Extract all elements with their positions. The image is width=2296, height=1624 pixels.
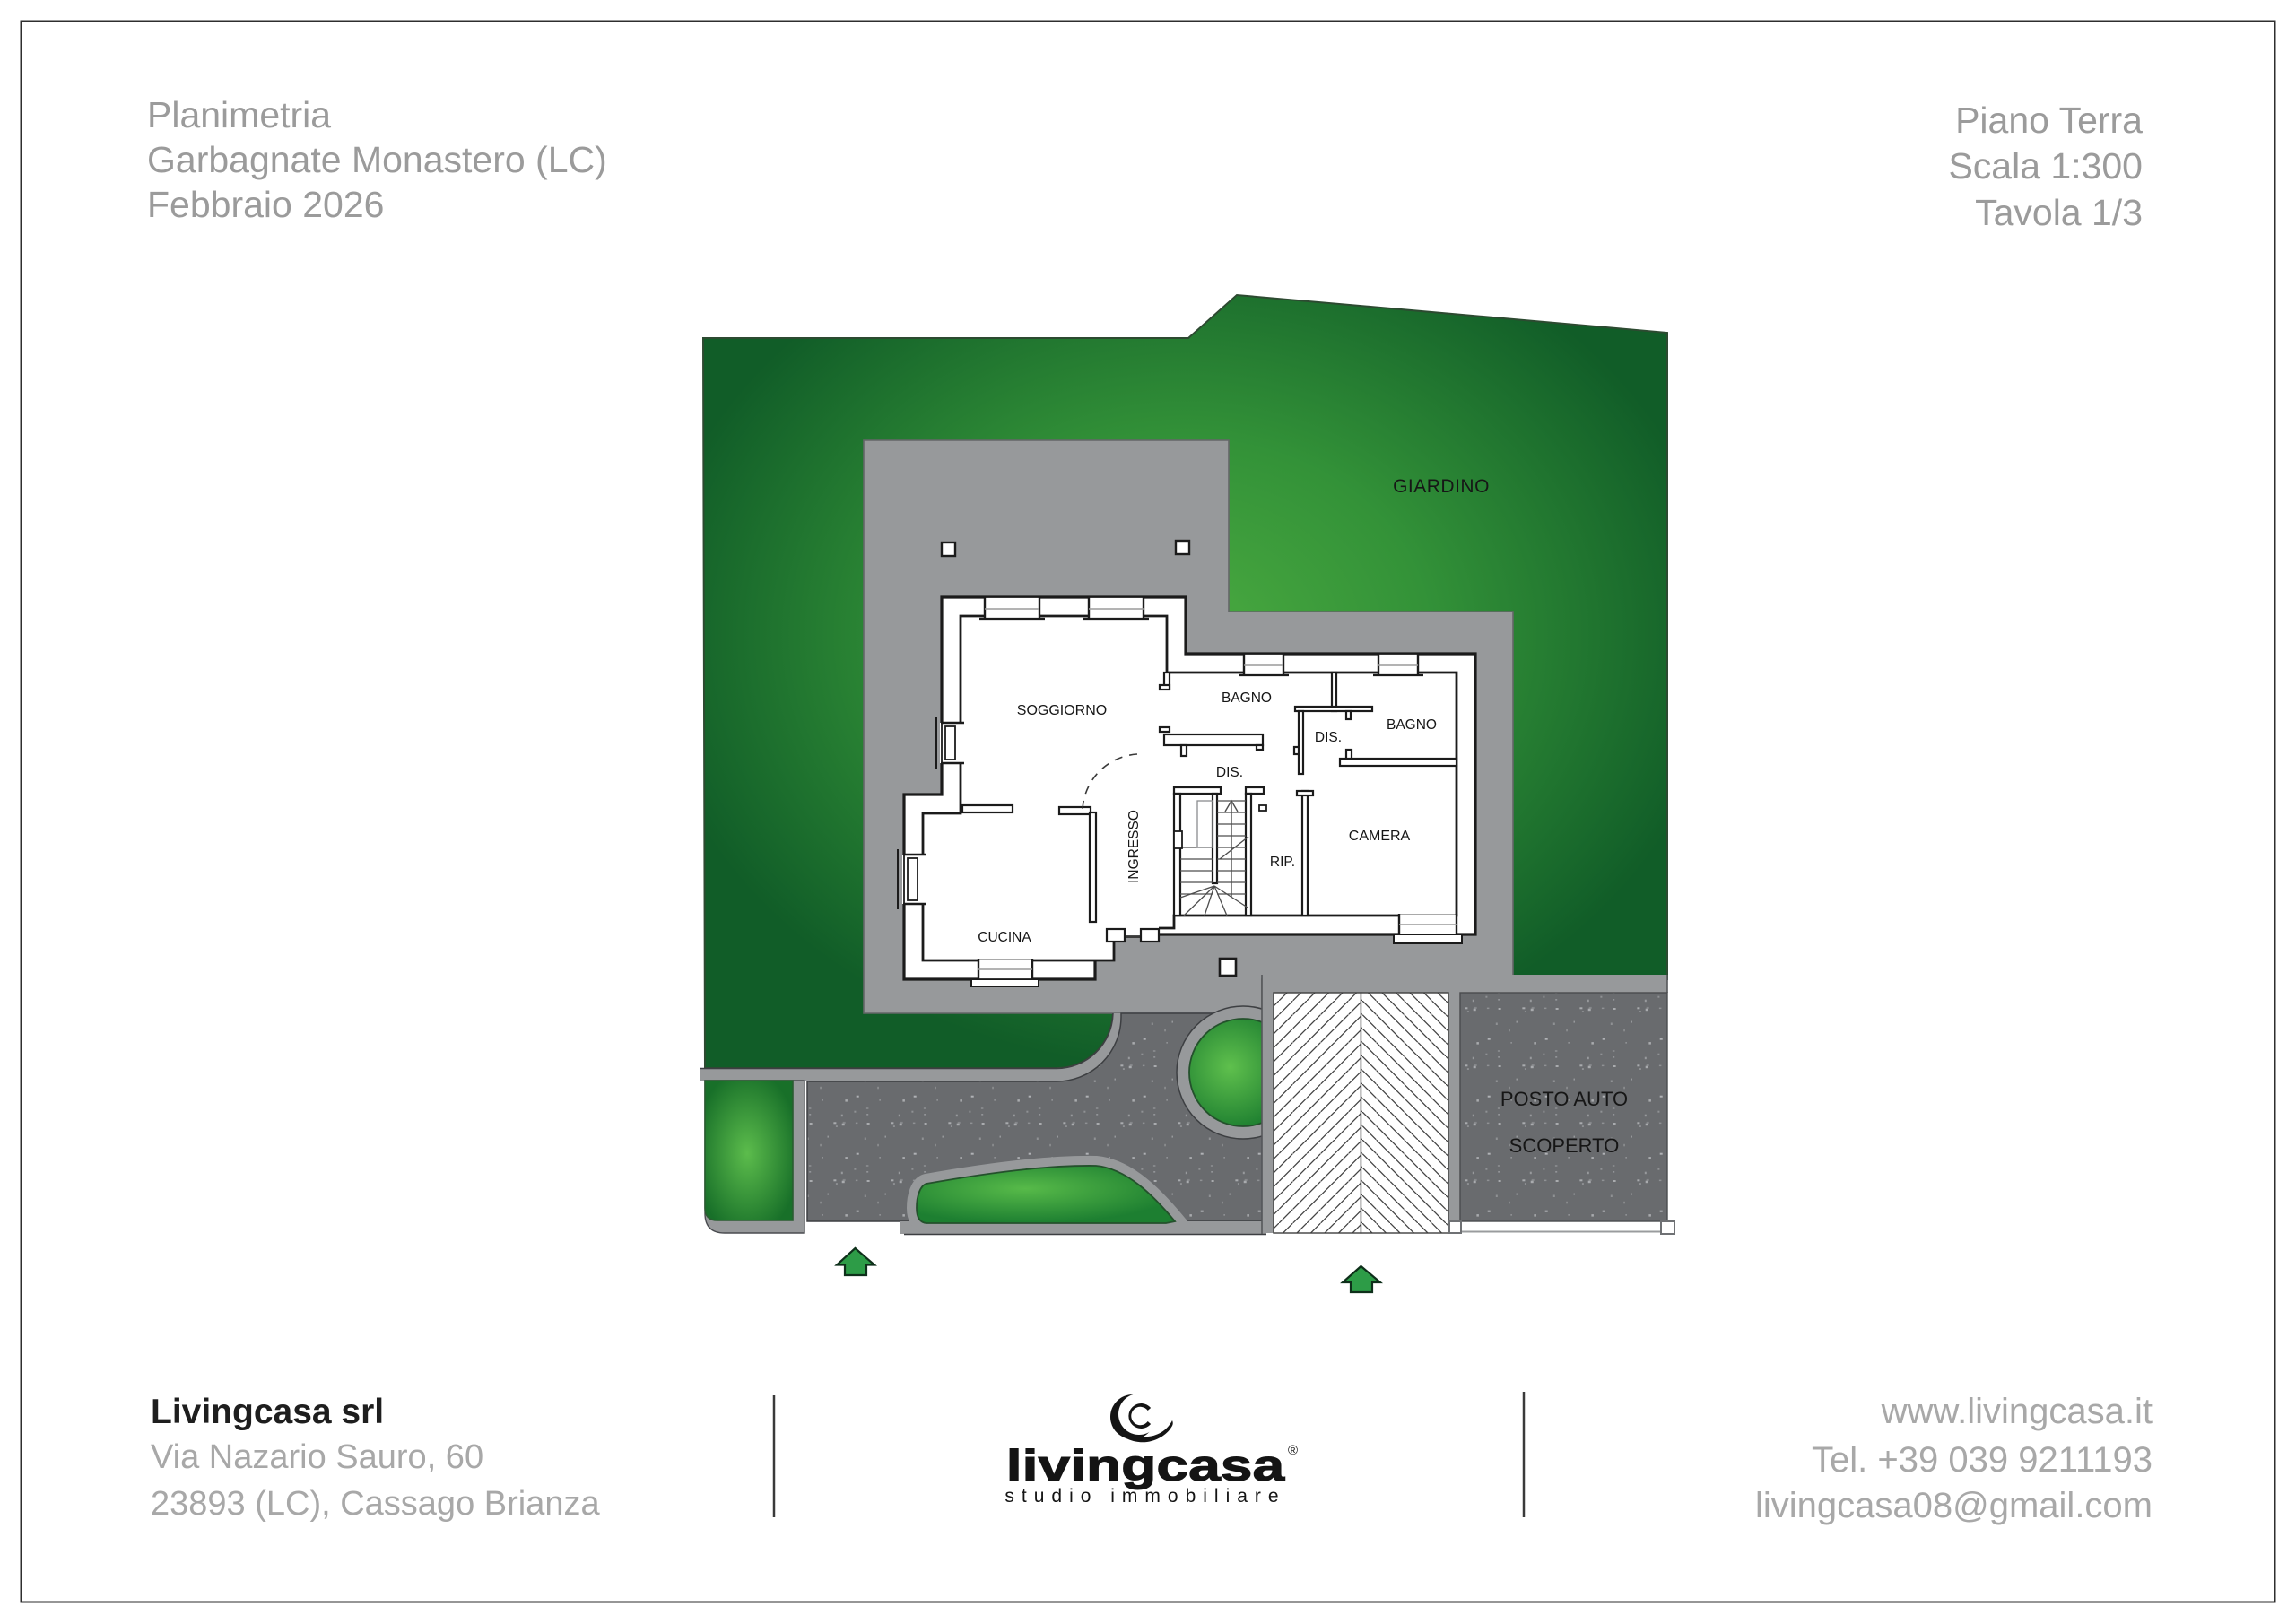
svg-text:®: ® xyxy=(1288,1443,1298,1458)
svg-text:CUCINA: CUCINA xyxy=(978,930,1031,945)
svg-text:Planimetria: Planimetria xyxy=(147,94,331,135)
svg-text:GIARDINO: GIARDINO xyxy=(1393,476,1490,497)
svg-text:DIS.: DIS. xyxy=(1216,765,1243,780)
svg-text:POSTO AUTO: POSTO AUTO xyxy=(1500,1088,1628,1110)
svg-text:livingcasa: livingcasa xyxy=(1006,1441,1286,1490)
svg-text:BAGNO: BAGNO xyxy=(1222,690,1272,706)
svg-text:INGRESSO: INGRESSO xyxy=(1126,810,1142,883)
svg-text:BAGNO: BAGNO xyxy=(1387,717,1437,733)
svg-text:www.livingcasa.it: www.livingcasa.it xyxy=(1881,1392,2152,1431)
svg-text:Tavola 1/3: Tavola 1/3 xyxy=(1975,192,2143,233)
svg-text:Scala 1:300: Scala 1:300 xyxy=(1948,145,2143,187)
svg-text:SOGGIORNO: SOGGIORNO xyxy=(1017,703,1107,718)
svg-text:Tel. +39 039 9211193: Tel. +39 039 9211193 xyxy=(1812,1440,2152,1480)
svg-text:SCOPERTO: SCOPERTO xyxy=(1509,1134,1620,1157)
svg-text:Febbraio 2026: Febbraio 2026 xyxy=(147,184,384,225)
svg-text:studio immobiliare: studio immobiliare xyxy=(1004,1486,1285,1507)
svg-text:CAMERA: CAMERA xyxy=(1349,829,1411,844)
svg-text:23893 (LC), Cassago Brianza: 23893 (LC), Cassago Brianza xyxy=(151,1485,600,1523)
svg-text:livingcasa08@gmail.com: livingcasa08@gmail.com xyxy=(1755,1486,2152,1525)
svg-text:DIS.: DIS. xyxy=(1315,730,1342,745)
svg-text:Garbagnate Monastero (LC): Garbagnate Monastero (LC) xyxy=(147,139,607,180)
svg-text:Livingcasa srl: Livingcasa srl xyxy=(151,1393,384,1431)
svg-text:Piano Terra: Piano Terra xyxy=(1955,100,2143,141)
svg-text:Via Nazario Sauro, 60: Via Nazario Sauro, 60 xyxy=(151,1438,483,1476)
svg-text:RIP.: RIP. xyxy=(1270,855,1295,870)
